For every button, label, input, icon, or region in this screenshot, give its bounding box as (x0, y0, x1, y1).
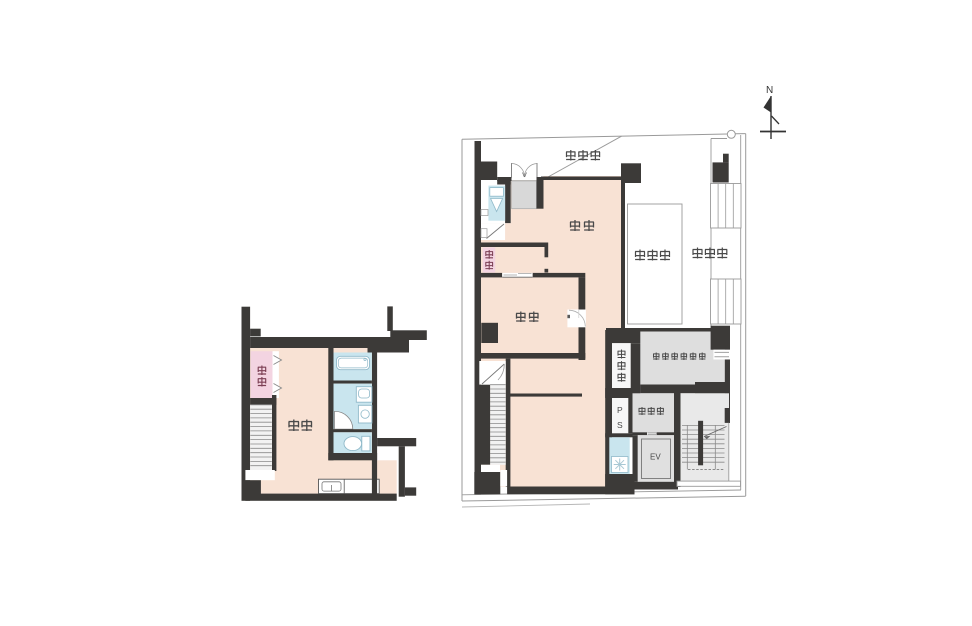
svg-text:EV: EV (650, 453, 661, 462)
svg-text:S: S (617, 420, 623, 430)
svg-text:P: P (617, 405, 623, 415)
svg-text:N: N (766, 85, 773, 96)
